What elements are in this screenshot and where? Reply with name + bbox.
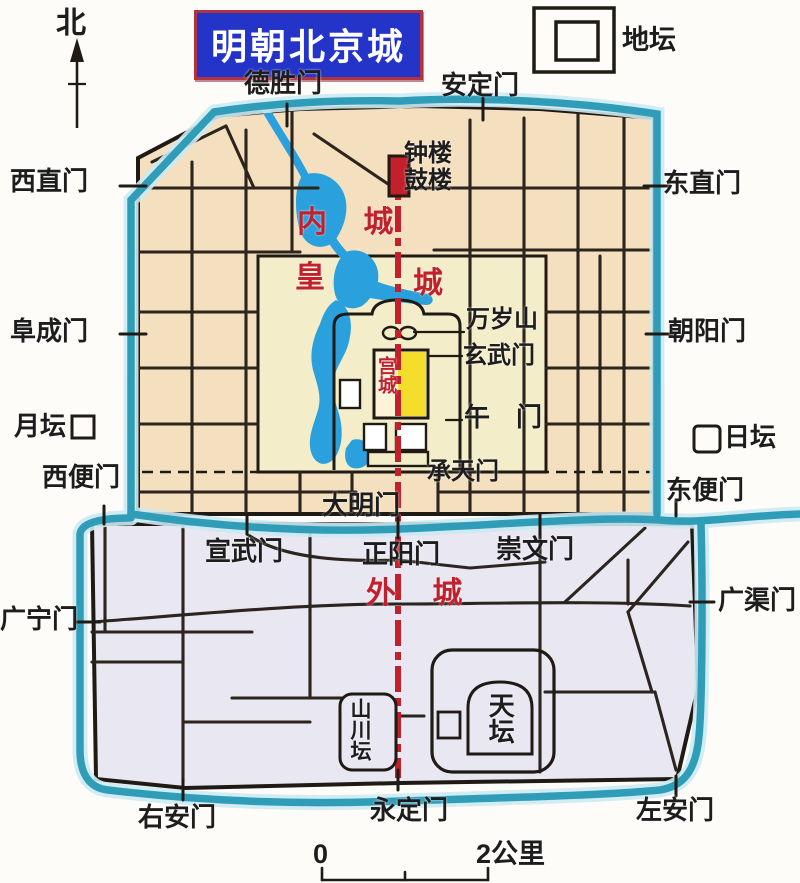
legend-ditan-label: 地坛 [622,26,676,54]
yuetan-square-icon [72,416,94,438]
region-label-outer-city: 外 城 [366,578,476,610]
landmark-label-shanchuantan: 山川坛 [348,698,370,761]
gate-label-dongbianmen: 东便门 [666,477,744,504]
gate-label-xibianmen: 西便门 [42,464,120,491]
map-canvas [0,0,800,883]
gate-label-andingmen: 安定门 [441,72,519,99]
landmark-label-wumen: 午 门 [464,404,542,431]
landmark-label-chengtianmen: 承天门 [427,459,499,484]
landmark-label-wansuishan: 万岁山 [466,307,538,332]
ming-beijing-map: 北 明朝北京城 地坛 德胜门 安定门 西直门 东直门 钟楼 鼓楼 内 城 皇 城… [0,0,800,883]
landmark-label-ritan: 日坛 [724,424,776,451]
region-label-inner-city: 内 城 [297,207,407,239]
gate-label-chongwenmen: 崇文门 [496,536,574,563]
palace-west-block [340,380,360,408]
gate-label-guangqumen: 广渠门 [718,587,796,614]
ditan-legend-outer-square [534,8,614,72]
scale-label-zero: 0 [313,840,328,868]
landmark-label-xuanwumen-palace: 玄武门 [463,343,535,368]
region-label-imperial-right: 城 [413,268,443,300]
landmark-label-gulou: 鼓楼 [404,168,452,193]
gate-label-fuchengmen: 阜成门 [10,318,88,345]
ritan-square-icon [694,426,720,452]
gate-label-xuanwumen-south: 宣武门 [205,538,283,565]
palace-city-yellow [398,352,426,416]
gate-label-dongzhimen: 东直门 [663,170,741,197]
landmark-label-yuetan: 月坛 [14,413,66,440]
landmark-label-tiantan: 天坛 [486,692,513,744]
ditan-legend-inner-square [556,22,598,60]
region-label-palace-city: 宫城 [375,356,395,394]
gate-label-zuoanmen: 左安门 [636,797,714,824]
palace-south-block-left [364,424,386,450]
gate-label-youanmen: 右安门 [138,804,216,831]
scale-label-2km: 2公里 [476,840,545,868]
landmark-label-zhonglou: 钟楼 [404,141,452,166]
gate-label-yongdingmen: 永定门 [370,797,448,824]
gate-label-xizhimen: 西直门 [10,168,88,195]
gate-label-guangningmen: 广宁门 [0,606,78,633]
landmark-label-damingmen: 大明门 [322,492,400,519]
north-label: 北 [56,8,86,40]
gate-label-chaoyangmen: 朝阳门 [668,318,746,345]
gate-label-deshengmen: 德胜门 [244,70,322,97]
region-label-imperial-left: 皇 [295,262,325,294]
gate-label-zhengyangmen: 正阳门 [362,541,440,568]
north-arrow-icon [68,38,86,128]
scale-bar [322,868,488,880]
